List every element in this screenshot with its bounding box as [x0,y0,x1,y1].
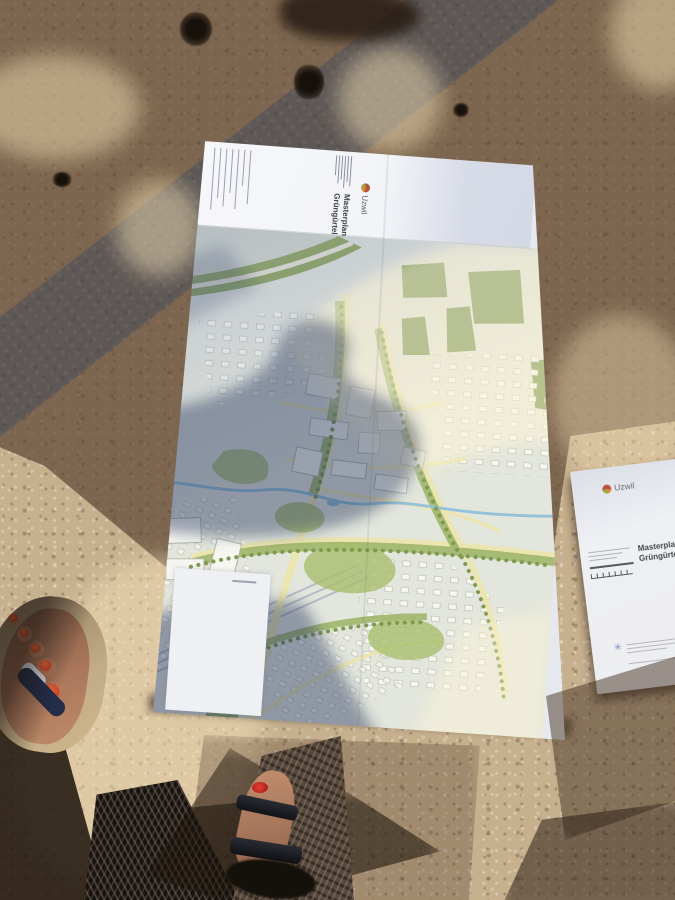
cover-meta-lines [588,545,635,579]
plan-meta-lines [334,155,354,188]
gum-stain [180,12,212,46]
cover-sheet: Uzwil Masterplan Grüngürtel Uzwil ✳ [570,457,675,695]
gum-stain [294,64,324,100]
uzwil-logo-icon [361,183,371,193]
map-brand-label: Uzwil [359,195,369,215]
cover-brand-label: Uzwil [614,480,635,492]
gum-stain [52,172,72,187]
legend-panel [165,568,271,716]
photo-scene: Masterplan Grüngürtel Uzwil Uzwil [0,0,675,900]
sunlit-patch [552,315,675,485]
map-title: Masterplan Grüngürtel [329,193,351,236]
legend-caption-line [232,580,256,584]
map-title-block: Masterplan Grüngürtel [329,155,354,236]
form-field-lines [210,148,251,212]
uzwil-logo-icon [602,484,612,494]
scale-bar [591,569,633,579]
consultant-logo-icon: ✳ [613,643,624,666]
cover-brand-row: Uzwil [602,480,635,494]
map-sheet: Masterplan Grüngürtel Uzwil [140,133,580,755]
cover-title: Masterplan Grüngürtel Uzwil [637,537,675,565]
right-toenail [252,782,268,793]
sunlit-patch [116,180,202,276]
cover-title-block: Masterplan Grüngürtel Uzwil [588,537,675,580]
map-brand-block: Uzwil [359,183,370,215]
pavement-shadow [500,800,675,900]
sunlit-patch [338,48,442,152]
gum-stain [453,103,469,117]
